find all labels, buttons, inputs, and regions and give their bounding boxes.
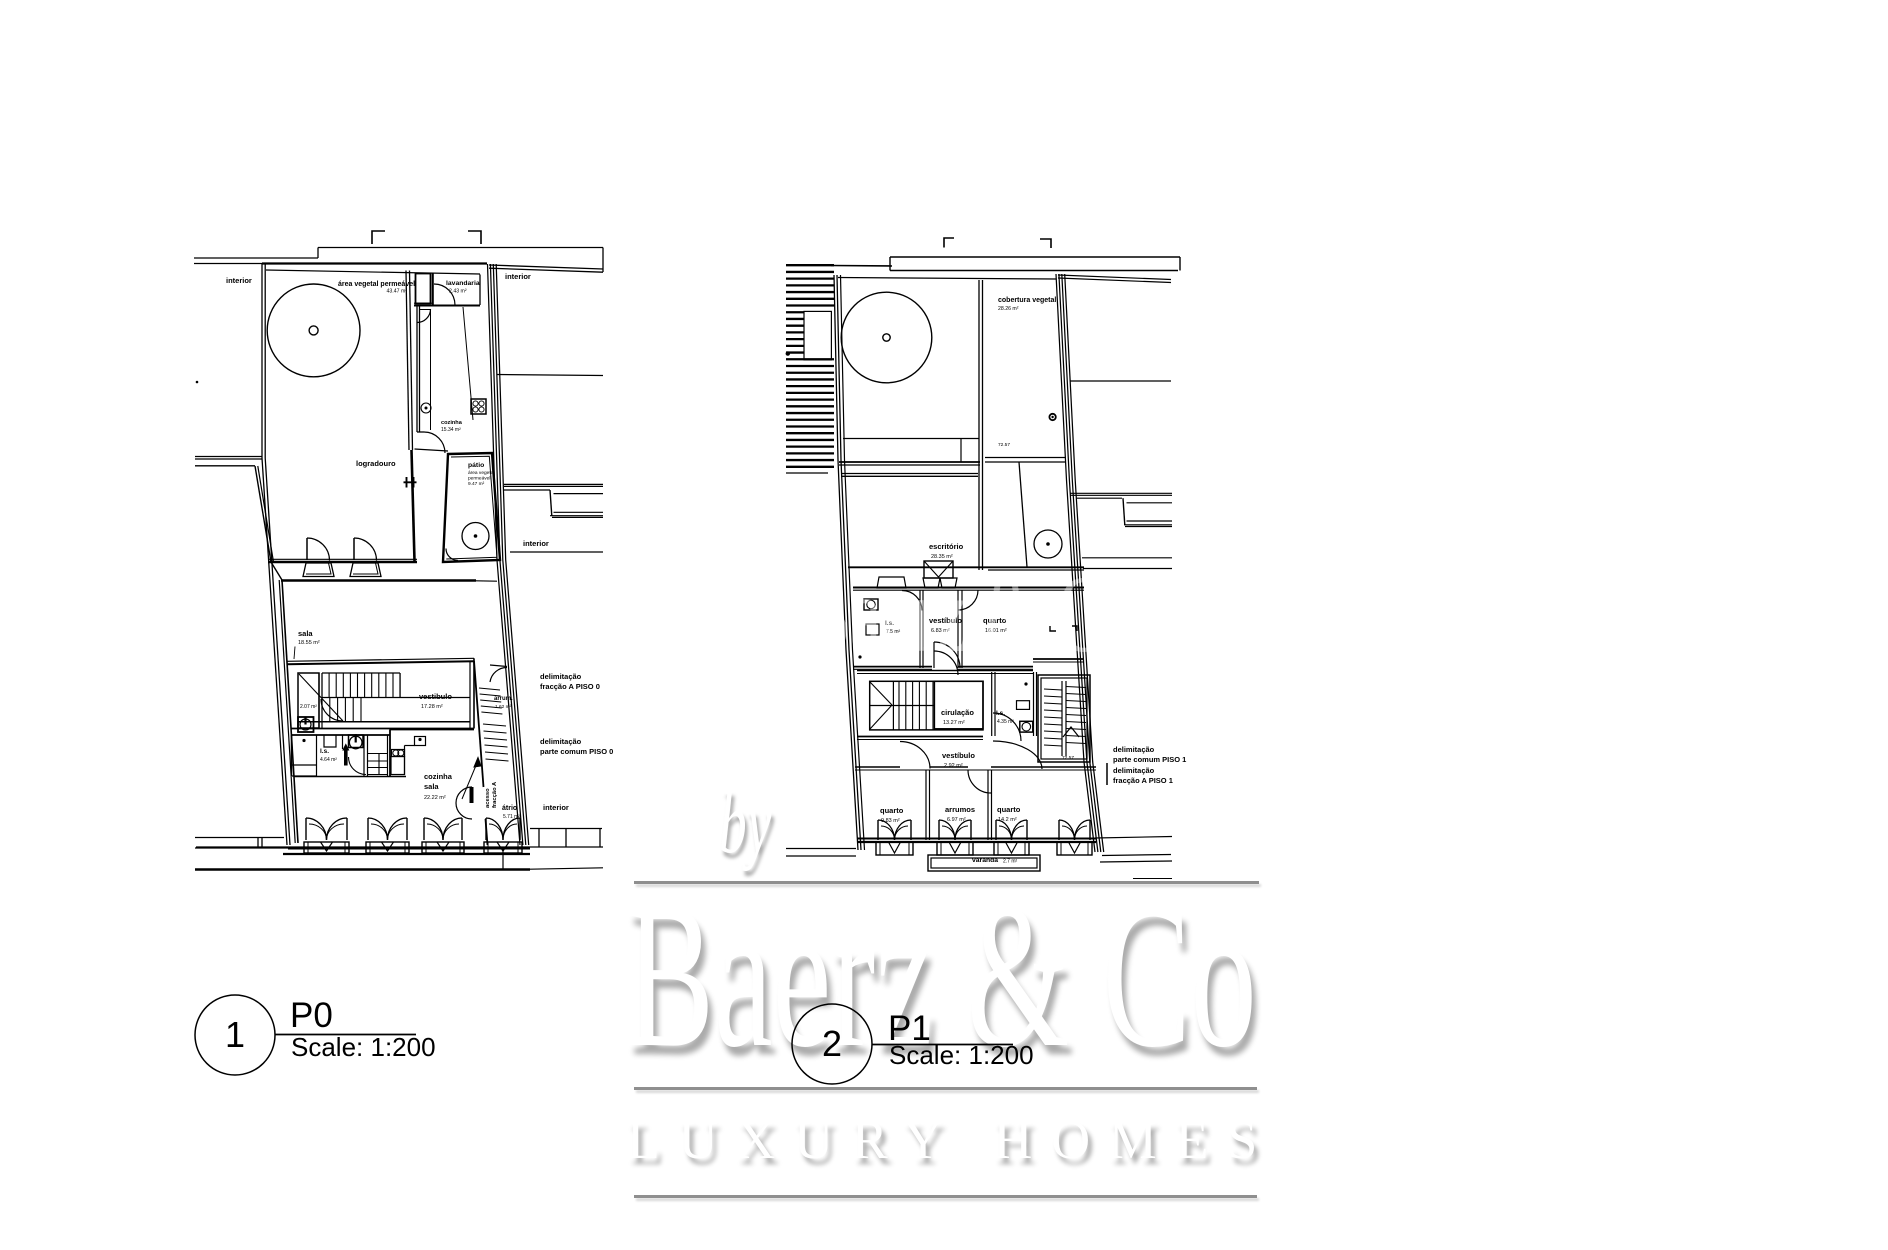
svg-text:2: 2 [822, 1023, 842, 1064]
svg-text:Scale: 1:200: Scale: 1:200 [889, 1040, 1034, 1070]
